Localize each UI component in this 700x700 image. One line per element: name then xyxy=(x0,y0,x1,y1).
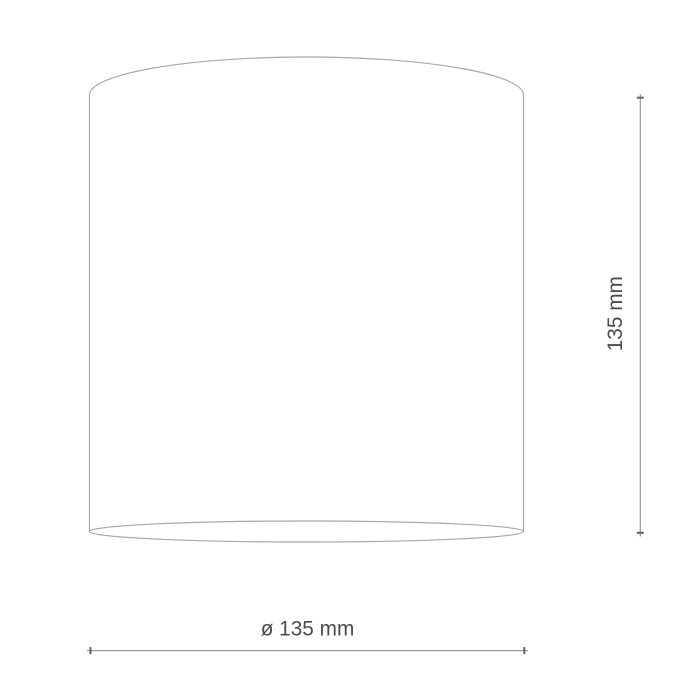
svg-text:135 mm: 135 mm xyxy=(604,276,627,351)
svg-text:ø 135 mm: ø 135 mm xyxy=(261,618,355,641)
